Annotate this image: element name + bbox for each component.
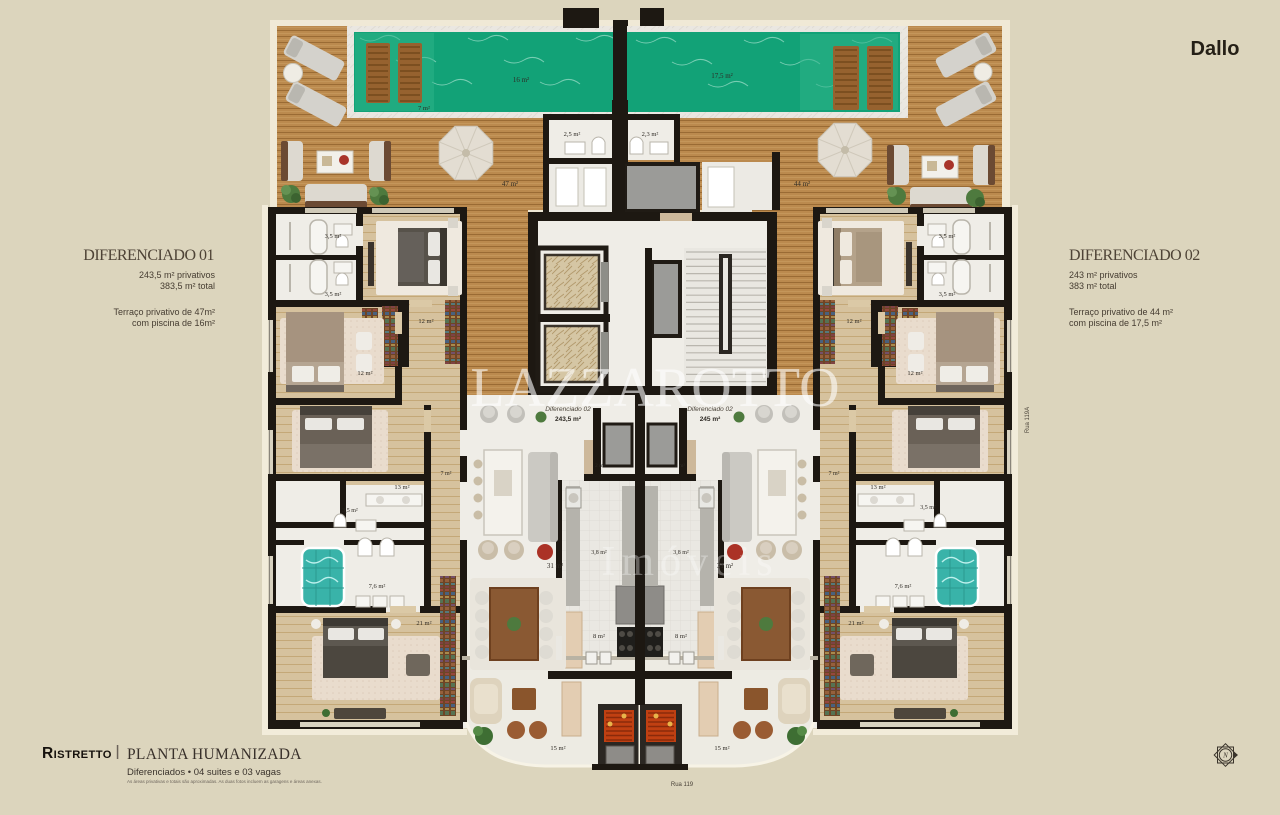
svg-text:Diferenciado 02: Diferenciado 02	[687, 406, 733, 413]
svg-text:243,5 m²: 243,5 m²	[555, 416, 582, 423]
svg-text:3,5 m²: 3,5 m²	[325, 291, 342, 298]
svg-text:7,6 m²: 7,6 m²	[369, 583, 386, 590]
svg-text:Diferenciados • 04 suites e 03: Diferenciados • 04 suites e 03 vagas	[127, 767, 281, 778]
svg-text:15 m²: 15 m²	[550, 745, 565, 752]
svg-text:12 m²: 12 m²	[357, 370, 372, 377]
svg-text:243 m² privativos: 243 m² privativos	[1069, 270, 1138, 280]
svg-text:com piscina de 17,5 m²: com piscina de 17,5 m²	[1069, 318, 1162, 328]
svg-text:3,5 m²: 3,5 m²	[325, 233, 342, 240]
svg-text:3,5 m²: 3,5 m²	[342, 508, 358, 514]
svg-text:31 m²: 31 m²	[547, 562, 563, 570]
svg-text:383 m² total: 383 m² total	[1069, 281, 1117, 291]
svg-text:Terraço privativo de 47m²: Terraço privativo de 47m²	[113, 307, 215, 317]
svg-text:7 m²: 7 m²	[418, 105, 430, 112]
svg-text:12 m²: 12 m²	[418, 318, 433, 325]
svg-text:13 m²: 13 m²	[394, 484, 409, 491]
svg-text:3,5 m²: 3,5 m²	[920, 505, 936, 511]
svg-text:21 m²: 21 m²	[848, 620, 863, 627]
svg-text:Terraço privativo de 44 m²: Terraço privativo de 44 m²	[1069, 307, 1173, 317]
svg-text:44 m²: 44 m²	[794, 180, 810, 188]
svg-text:47 m²: 47 m²	[502, 180, 518, 188]
svg-text:21 m²: 21 m²	[416, 620, 431, 627]
svg-text:3,5 m²: 3,5 m²	[939, 233, 956, 240]
svg-text:7 m²: 7 m²	[829, 471, 840, 477]
svg-text:12 m²: 12 m²	[907, 370, 922, 377]
svg-text:3,8 m²: 3,8 m²	[673, 550, 689, 556]
svg-text:Rua 119: Rua 119	[671, 782, 694, 788]
svg-text:243,5 m² privativos: 243,5 m² privativos	[139, 270, 216, 280]
svg-text:8 m²: 8 m²	[675, 633, 687, 640]
svg-text:DIFERENCIADO 02: DIFERENCIADO 02	[1069, 247, 1200, 264]
svg-text:16 m²: 16 m²	[513, 76, 529, 84]
svg-text:As áreas privativas e totais s: As áreas privativas e totais são aproxim…	[127, 779, 322, 784]
svg-text:7 m²: 7 m²	[441, 471, 452, 477]
svg-text:2,5 m²: 2,5 m²	[564, 131, 581, 138]
svg-text:15 m²: 15 m²	[714, 745, 729, 752]
svg-text:Imóveis: Imóveis	[601, 539, 778, 585]
svg-text:2 m²: 2 m²	[595, 463, 605, 469]
svg-text:Rua 119A: Rua 119A	[1025, 407, 1031, 433]
svg-text:PLANTA HUMANIZADA: PLANTA HUMANIZADA	[127, 746, 302, 763]
svg-text:245 m²: 245 m²	[700, 416, 721, 423]
svg-text:17,5 m²: 17,5 m²	[711, 72, 733, 80]
svg-text:2 m²: 2 m²	[675, 463, 685, 469]
svg-text:13 m²: 13 m²	[870, 484, 885, 491]
svg-text:3,8 m²: 3,8 m²	[591, 550, 607, 556]
svg-text:12 m²: 12 m²	[846, 318, 861, 325]
svg-text:8 m²: 8 m²	[593, 633, 605, 640]
svg-text:com piscina de 16m²: com piscina de 16m²	[132, 318, 215, 328]
svg-text:N: N	[1222, 752, 1228, 760]
svg-text:3,5 m²: 3,5 m²	[939, 291, 956, 298]
svg-text:Diferenciado 02: Diferenciado 02	[545, 406, 591, 413]
svg-text:383,5 m² total: 383,5 m² total	[160, 281, 215, 291]
svg-text:LAZZAROTTO: LAZZAROTTO	[470, 357, 839, 419]
svg-text:Dallo: Dallo	[1191, 38, 1240, 60]
svg-text:7,6 m²: 7,6 m²	[895, 583, 912, 590]
svg-text:DIFERENCIADO 01: DIFERENCIADO 01	[83, 247, 214, 264]
svg-text:2,3 m²: 2,3 m²	[642, 131, 659, 138]
svg-text:31 m²: 31 m²	[717, 562, 733, 570]
